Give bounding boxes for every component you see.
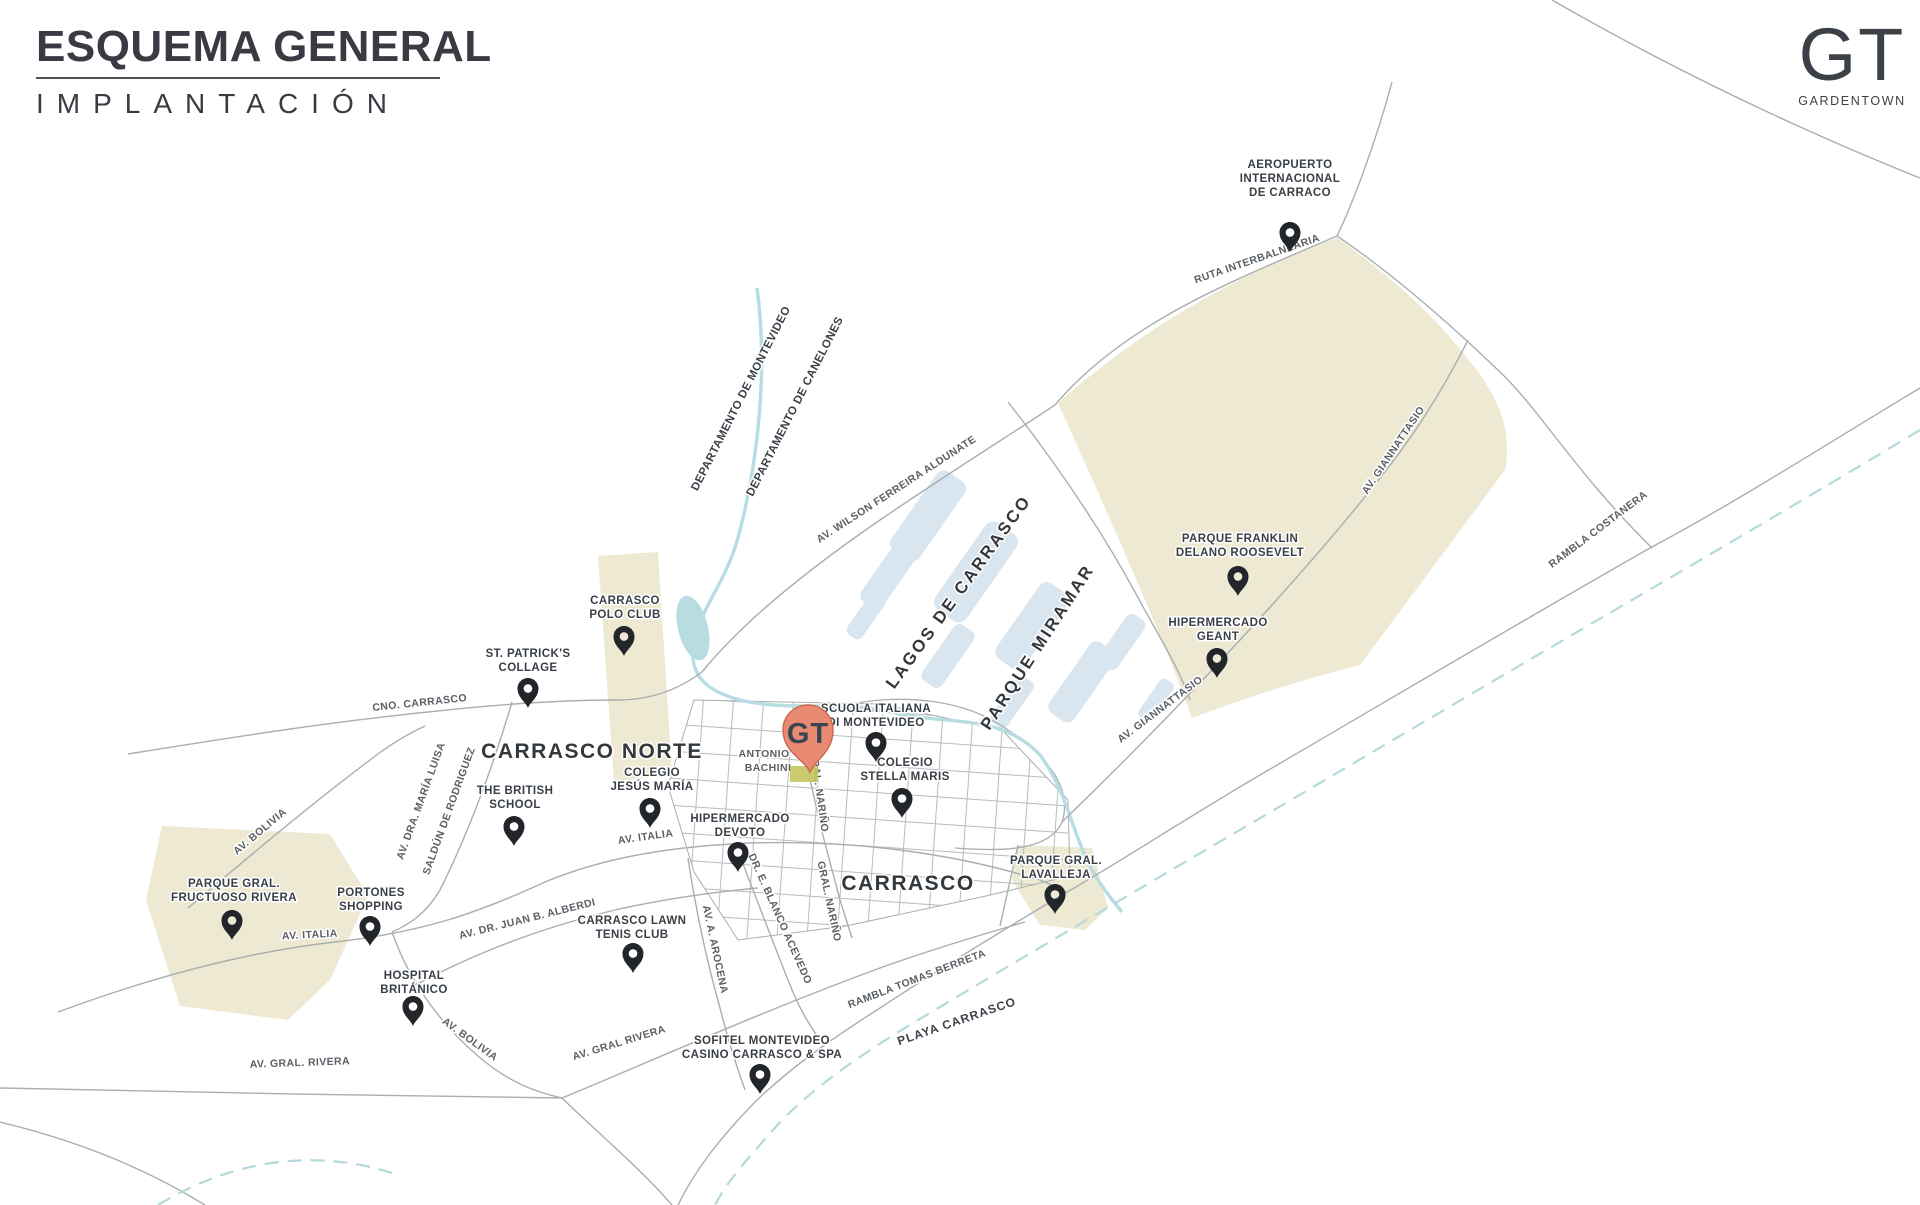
svg-text:AEROPUERTO: AEROPUERTO <box>1248 159 1333 171</box>
svg-text:CASINO CARRASCO & SPA: CASINO CARRASCO & SPA <box>682 1049 842 1061</box>
poi-the-british-school: THE BRITISH SCHOOL <box>477 785 554 811</box>
svg-text:DI MONTEVIDEO: DI MONTEVIDEO <box>827 717 924 729</box>
gardentown-logo: GT GARDENTOWN <box>1796 16 1908 108</box>
svg-text:SHOPPING: SHOPPING <box>339 901 403 913</box>
svg-text:COLLAGE: COLLAGE <box>498 662 557 674</box>
pin-sofitel <box>750 1064 771 1094</box>
poi-hospital-britanico: HOSPITAL BRITÁNICO <box>380 970 448 996</box>
pin-carrasco-lawn-tenis <box>623 943 644 973</box>
svg-text:COLEGIO: COLEGIO <box>877 757 933 769</box>
title-divider <box>36 77 440 79</box>
pin-colegio-jesus-maria <box>640 798 661 828</box>
svg-text:DE CARRACO: DE CARRACO <box>1249 187 1331 199</box>
site-plot <box>790 766 818 782</box>
title-line2: IMPLANTACIÓN <box>36 88 492 120</box>
city-map: LAGOS DE CARRASCO PARQUE MIRAMAR CARRASC… <box>0 0 1920 1205</box>
svg-text:PORTONES: PORTONES <box>337 887 405 899</box>
poi-st-patricks: ST. PATRICK'S COLLAGE <box>486 648 571 674</box>
svg-text:HIPERMERCADO: HIPERMERCADO <box>1168 617 1267 629</box>
svg-text:SCHOOL: SCHOOL <box>489 799 541 811</box>
logo-name: GARDENTOWN <box>1796 94 1908 108</box>
road-airport-access <box>1337 82 1392 236</box>
pin-the-british-school <box>504 816 525 846</box>
svg-text:DELANO ROOSEVELT: DELANO ROOSEVELT <box>1176 547 1304 559</box>
label-av-italia-center: AV. ITALIA <box>617 827 674 847</box>
svg-text:HOSPITAL: HOSPITAL <box>384 970 445 982</box>
parque-rivera-area <box>146 826 368 1020</box>
boundary-departamento-montevideo: DEPARTAMENTO DE MONTEVIDEO <box>689 304 793 492</box>
svg-text:LAVALLEJA: LAVALLEJA <box>1021 869 1091 881</box>
svg-text:STELLA MARIS: STELLA MARIS <box>860 771 949 783</box>
label-av-gral-rivera-diag: AV. GRAL RIVERA <box>571 1023 667 1063</box>
svg-text:JESÚS MARÍA: JESÚS MARÍA <box>611 780 694 793</box>
gt-pin-label: GT <box>787 718 829 750</box>
label-av-bolivia-south: AV. BOLIVIA <box>440 1015 500 1063</box>
poi-aeropuerto: AEROPUERTO INTERNACIONAL DE CARRACO <box>1240 159 1340 199</box>
label-antonio-bachini-2: BACHINI <box>745 762 792 774</box>
svg-text:FRUCTUOSO RIVERA: FRUCTUOSO RIVERA <box>171 892 297 904</box>
svg-text:PARQUE GRAL.: PARQUE GRAL. <box>188 878 280 890</box>
road-bottom-left <box>0 1122 205 1205</box>
page-title-block: ESQUEMA GENERAL IMPLANTACIÓN <box>36 24 492 120</box>
label-av-gral-rivera-west: AV. GRAL. RIVERA <box>250 1055 351 1070</box>
svg-text:GEANT: GEANT <box>1197 631 1239 643</box>
svg-text:ST. PATRICK'S: ST. PATRICK'S <box>486 648 571 660</box>
logo-initials: GT <box>1796 16 1908 94</box>
label-cno-carrasco: CNO. CARRASCO <box>372 692 468 714</box>
poi-carrasco-lawn-tenis: CARRASCO LAWN TENIS CLUB <box>578 915 687 941</box>
district-carrasco-norte: CARRASCO NORTE <box>481 740 703 763</box>
svg-text:INTERNACIONAL: INTERNACIONAL <box>1240 173 1340 185</box>
district-carrasco: CARRASCO <box>841 872 974 895</box>
svg-text:BRITÁNICO: BRITÁNICO <box>380 983 448 996</box>
svg-text:THE BRITISH: THE BRITISH <box>477 785 554 797</box>
poi-sofitel: SOFITEL MONTEVIDEO CASINO CARRASCO & SPA <box>682 1035 842 1061</box>
road-bolivia-continuation <box>562 1098 672 1205</box>
svg-text:POLO CLUB: POLO CLUB <box>589 609 660 621</box>
svg-text:HIPERMERCADO: HIPERMERCADO <box>690 813 789 825</box>
road-av-gral-rivera-west <box>0 1088 562 1098</box>
label-antonio-bachini-1: ANTONIO <box>738 748 789 760</box>
title-line1: ESQUEMA GENERAL <box>36 24 492 70</box>
label-av-alberdi: AV. DR. JUAN B. ALBERDI <box>458 896 597 942</box>
svg-text:SOFITEL MONTEVIDEO: SOFITEL MONTEVIDEO <box>694 1035 830 1047</box>
svg-text:DEVOTO: DEVOTO <box>715 827 766 839</box>
label-rambla-tomas-berreta: RAMBLA TOMAS BERRETA <box>846 947 987 1011</box>
svg-text:CARRASCO: CARRASCO <box>590 595 660 607</box>
svg-text:COLEGIO: COLEGIO <box>624 767 680 779</box>
svg-text:SCUOLA ITALIANA: SCUOLA ITALIANA <box>821 703 931 715</box>
svg-text:TENIS CLUB: TENIS CLUB <box>596 929 669 941</box>
svg-text:PARQUE GRAL.: PARQUE GRAL. <box>1010 855 1102 867</box>
svg-text:CARRASCO LAWN: CARRASCO LAWN <box>578 915 687 927</box>
svg-text:PARQUE FRANKLIN: PARQUE FRANKLIN <box>1182 533 1298 545</box>
pin-hospital-britanico <box>403 996 424 1026</box>
pin-portones-shopping <box>360 916 381 946</box>
district-playa-carrasco: PLAYA CARRASCO <box>895 994 1017 1048</box>
implantation-map-page: LAGOS DE CARRASCO PARQUE MIRAMAR CARRASC… <box>0 0 1920 1205</box>
